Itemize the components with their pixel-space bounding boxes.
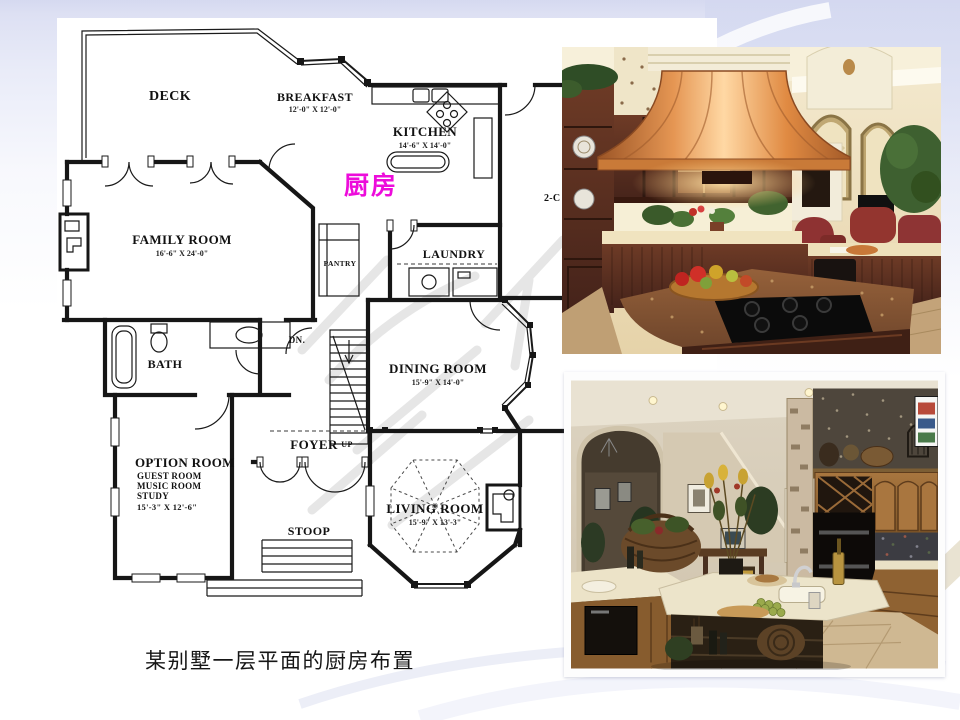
room-label-living: LIVING ROOM	[386, 501, 483, 516]
room-label-family: FAMILY ROOM	[132, 232, 232, 247]
room-label-pantry: PANTRY	[324, 259, 357, 268]
kitchen-photo-copper-hood	[562, 47, 941, 354]
room-label-breakfast: BREAKFAST	[277, 90, 353, 104]
room-dims-dining: 15'-9" X 14'-0"	[412, 378, 464, 387]
room-dims-family: 16'-6" X 24'-0"	[156, 249, 208, 258]
room-label-music: MUSIC ROOM	[137, 481, 201, 491]
room-label-dining: DINING ROOM	[389, 361, 487, 376]
room-label-guest: GUEST ROOM	[137, 471, 202, 481]
kitchen-callout-text: 厨房	[344, 166, 398, 202]
room-label-kitchen: KITCHEN	[393, 124, 457, 139]
room-label-foyer: FOYER	[290, 437, 338, 452]
slide-caption: 某别墅一层平面的厨房布置	[145, 645, 415, 675]
room-label-stoop: STOOP	[288, 524, 330, 538]
stairs-up-label: UP	[341, 440, 352, 449]
room-label-study: STUDY	[137, 491, 169, 501]
room-dims-breakfast: 12'-0" X 12'-0"	[289, 105, 341, 114]
room-label-deck: DECK	[149, 89, 191, 104]
room-label-laundry: LAUNDRY	[423, 247, 485, 261]
presentation-slide: DECK BREAKFAST 12'-0" X 12'-0" KITCHEN 1…	[0, 0, 960, 720]
garage-partial-label: 2-C	[544, 193, 560, 204]
room-label-bath: BATH	[148, 357, 183, 371]
stairs-down-label: DN.	[289, 335, 305, 345]
room-dims-kitchen: 14'-6" X 14'-0"	[399, 141, 451, 150]
kitchen-photo-island	[571, 379, 938, 670]
room-label-option: OPTION ROOM	[135, 455, 235, 470]
room-dims-living: 15'-9" X 13'-3"	[409, 518, 461, 527]
room-dims-option: 15'-3" X 12'-6"	[137, 502, 197, 512]
kitchen-photo-island-frame	[564, 372, 945, 677]
